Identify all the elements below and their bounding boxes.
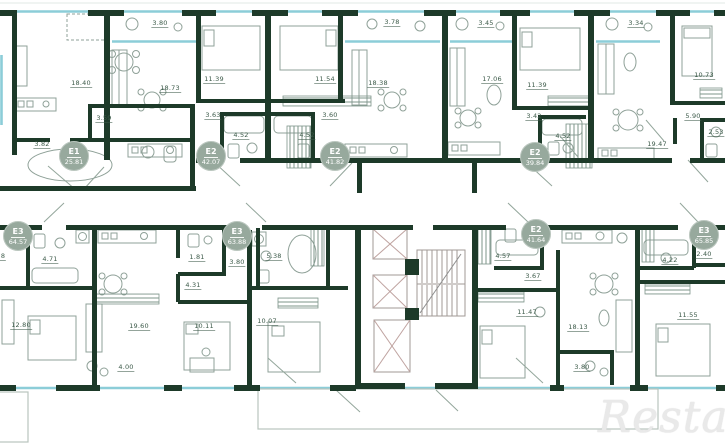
apartment-type: Е3 <box>698 226 709 235</box>
room-area-label: 4.52 <box>298 132 315 140</box>
room-area-label: 10.11 <box>193 323 215 331</box>
elevator-shafts <box>373 229 410 372</box>
badge-divider <box>11 237 25 238</box>
staircase <box>417 250 465 316</box>
apartment-total-area: 41.64 <box>527 237 546 244</box>
apartment-total-area: 39.84 <box>526 160 545 167</box>
room-area-label: 3.78 <box>383 19 400 27</box>
room-area-label: 18.13 <box>567 324 589 332</box>
room-area-label: 4.22 <box>661 257 678 265</box>
apartment-badge[interactable]: Е3 65.85 <box>689 220 719 250</box>
room-area-label: 1.81 <box>188 254 205 262</box>
badge-divider <box>230 237 244 238</box>
apartment-badge[interactable]: Е2 41.64 <box>521 219 551 249</box>
room-area-label: 4.31 <box>184 282 201 290</box>
porch-outline <box>0 389 658 442</box>
room-area-label: 3.82 <box>33 141 50 149</box>
badge-divider <box>328 157 342 158</box>
room-area-label: 11.55 <box>677 312 699 320</box>
apartment-total-area: 25.81 <box>65 159 84 166</box>
apartment-badge[interactable]: Е2 39.84 <box>520 142 550 172</box>
room-area-label: 10.07 <box>256 318 278 326</box>
room-area-label: 3.60 <box>321 112 338 120</box>
apartment-total-area: 41.82 <box>326 159 345 166</box>
floorplan-drawing <box>0 0 725 444</box>
apartment-type: Е3 <box>231 227 242 236</box>
apartment-badge[interactable]: Е3 63.88 <box>222 221 252 251</box>
room-area-label: 5.90 <box>684 113 701 121</box>
room-area-label: 17.06 <box>481 76 503 84</box>
apartment-badge[interactable]: Е1 25.81 <box>59 141 89 171</box>
room-area-label: 11.39 <box>203 76 225 84</box>
room-area-label: 3.80 <box>228 259 245 267</box>
apartment-type: Е2 <box>329 147 340 156</box>
badge-divider <box>67 157 81 158</box>
apartment-badge[interactable]: Е2 41.82 <box>320 141 350 171</box>
room-area-label: 3.80 <box>151 20 168 28</box>
room-area-label: 12.80 <box>10 322 32 330</box>
badge-divider <box>204 157 218 158</box>
room-area-label: 18.73 <box>159 85 181 93</box>
room-area-label: 4.00 <box>117 364 134 372</box>
room-area-label: 4.52 <box>554 133 571 141</box>
door-swings <box>44 120 708 412</box>
badge-divider <box>529 235 543 236</box>
room-area-label: 18.38 <box>367 80 389 88</box>
room-area-label: 4.52 <box>232 132 249 140</box>
room-area-label: 11.39 <box>526 82 548 90</box>
room-area-label: 3.63 <box>204 112 221 120</box>
room-area-label: 8 <box>0 253 6 261</box>
room-area-label: 3.59 <box>95 115 112 123</box>
room-area-label: 4.71 <box>41 256 58 264</box>
room-area-label: 2.40 <box>695 251 712 259</box>
room-area-label: 11.54 <box>314 76 336 84</box>
apartment-total-area: 64.57 <box>9 239 28 246</box>
room-area-label: 3.80 <box>573 364 590 372</box>
room-area-label: 5.38 <box>265 253 282 261</box>
apartment-total-area: 65.85 <box>695 238 714 245</box>
room-area-label: 3.67 <box>524 273 541 281</box>
apartment-type: Е3 <box>12 227 23 236</box>
room-area-label: 19.47 <box>646 141 668 149</box>
apartment-total-area: 42.07 <box>202 159 221 166</box>
apartment-type: Е1 <box>68 147 79 156</box>
room-area-label: 4.57 <box>494 253 511 261</box>
room-area-label: 18.40 <box>70 80 92 88</box>
room-area-label: 3.45 <box>477 20 494 28</box>
badge-divider <box>528 158 542 159</box>
restate-watermark: Restate <box>598 392 725 443</box>
apartment-type: Е2 <box>529 148 540 157</box>
apartment-badge[interactable]: Е3 64.57 <box>3 221 33 251</box>
apartment-total-area: 63.88 <box>228 239 247 246</box>
room-area-label: 19.60 <box>128 323 150 331</box>
room-area-label: 11.47 <box>516 309 538 317</box>
room-area-label: 2.53 <box>707 129 724 137</box>
floorplan: 18.40 3.59 3.82 3.80 18.73 11.39 3.63 4.… <box>0 0 725 444</box>
room-area-label: 10.73 <box>693 72 715 80</box>
badge-divider <box>697 236 711 237</box>
apartment-type: Е2 <box>530 225 541 234</box>
apartment-badge[interactable]: Е2 42.07 <box>196 141 226 171</box>
room-area-label: 3.42 <box>525 113 542 121</box>
room-area-label: 3.34 <box>627 20 644 28</box>
apartment-type: Е2 <box>205 147 216 156</box>
